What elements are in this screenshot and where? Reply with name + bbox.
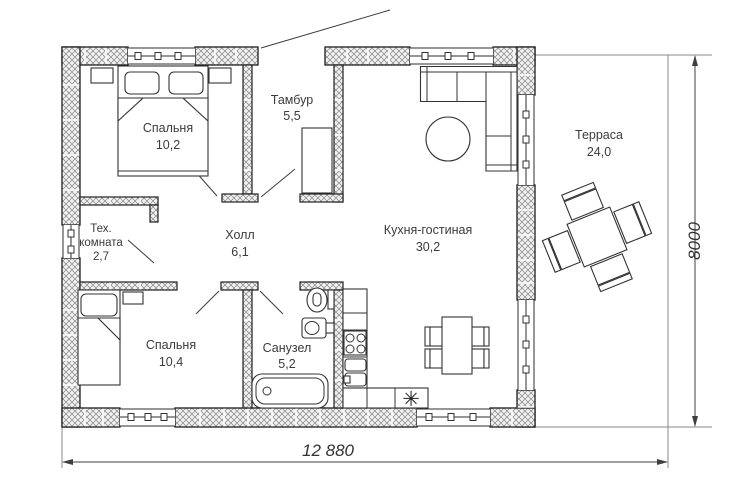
window-bedroom2-bottom bbox=[120, 409, 175, 427]
room-label-bedroom1: Спальня bbox=[143, 121, 193, 135]
room-area-hall: 6,1 bbox=[231, 245, 248, 259]
room-label-terrace: Терраса bbox=[575, 128, 623, 142]
wall-tech-bottom bbox=[80, 282, 177, 290]
nightstand bbox=[123, 292, 143, 304]
pillow bbox=[125, 72, 159, 94]
room-area-sanuzel: 5,2 bbox=[278, 357, 295, 371]
room-area-kitchen-living: 30,2 bbox=[416, 240, 440, 254]
terrace-set bbox=[529, 169, 664, 304]
toilet bbox=[307, 288, 334, 312]
dining-chair bbox=[471, 327, 484, 346]
wall-tambur-bottom bbox=[300, 194, 343, 202]
dimension-height-label: 8000 bbox=[685, 222, 704, 260]
wall-left-1 bbox=[62, 47, 80, 225]
window-bedroom1-top bbox=[128, 48, 195, 65]
room-area-terrace: 24,0 bbox=[587, 145, 611, 159]
room-label-kitchen-living: Кухня-гостиная bbox=[384, 223, 472, 237]
window-living-top bbox=[410, 48, 493, 65]
wall-sanuzel-left bbox=[243, 290, 252, 408]
coffee-table bbox=[426, 117, 470, 161]
floor-plan-page: ✳ 12 880 bbox=[0, 0, 744, 502]
kitchen-tap bbox=[344, 376, 350, 383]
single-bed bbox=[78, 290, 120, 385]
wall-top-2 bbox=[195, 47, 258, 65]
pillow bbox=[169, 72, 203, 94]
window-kitchen-bottom bbox=[417, 409, 490, 427]
wall-right-1 bbox=[517, 47, 535, 95]
window-tech-left bbox=[63, 225, 80, 258]
room-label-tambur: Тамбур bbox=[271, 93, 313, 107]
room-label-sanuzel: Санузел bbox=[263, 341, 312, 355]
wall-tech-stub bbox=[150, 205, 158, 222]
entrance-leader-line bbox=[261, 10, 390, 48]
room-area-tech: 2,7 bbox=[93, 251, 109, 263]
door-swing-tambur-hall bbox=[261, 169, 295, 197]
room-label-hall: Холл bbox=[225, 228, 254, 242]
floor-plan-drawing: ✳ 12 880 bbox=[0, 0, 744, 502]
fridge-star-icon: ✳ bbox=[402, 387, 420, 411]
dimension-width-label: 12 880 bbox=[302, 441, 355, 460]
room-label-bedroom2: Спальня bbox=[146, 338, 196, 352]
window-living-right-upper bbox=[518, 95, 535, 185]
wall-left-2 bbox=[62, 258, 80, 427]
dining-chair bbox=[425, 349, 430, 368]
wall-tech-top bbox=[80, 197, 158, 205]
wall-bottom-1 bbox=[62, 408, 120, 427]
door-swing-bedroom2 bbox=[196, 291, 219, 314]
door-swing-sanuzel bbox=[260, 291, 283, 314]
nightstand bbox=[91, 68, 113, 83]
wall-tambur-left bbox=[243, 65, 252, 194]
dining-chair bbox=[471, 349, 484, 368]
wall-tambur-right bbox=[334, 65, 343, 202]
dining-chair bbox=[425, 327, 430, 346]
pillow bbox=[81, 294, 117, 316]
room-label-tech-2: комната bbox=[79, 237, 123, 249]
kitchen-sink bbox=[345, 359, 366, 371]
kitchen-counter: ✳ bbox=[343, 289, 428, 411]
room-label-tech-1: Тех. bbox=[90, 223, 111, 235]
door-swing-tech bbox=[128, 240, 154, 263]
nightstand bbox=[209, 68, 231, 83]
wall-sanuzel-right bbox=[334, 290, 343, 408]
bathtub bbox=[252, 374, 328, 408]
dining-table bbox=[442, 317, 472, 374]
wall-hall-bottom-cap bbox=[221, 282, 258, 290]
room-area-bedroom2: 10,4 bbox=[159, 355, 183, 369]
dining-set bbox=[425, 317, 489, 374]
room-area-bedroom1: 10,2 bbox=[156, 138, 180, 152]
bathroom-sink bbox=[302, 318, 334, 338]
window-living-right-lower bbox=[518, 300, 535, 390]
wardrobe bbox=[302, 128, 332, 193]
room-area-tambur: 5,5 bbox=[283, 109, 300, 123]
wall-tambur-left-cap bbox=[222, 194, 258, 202]
